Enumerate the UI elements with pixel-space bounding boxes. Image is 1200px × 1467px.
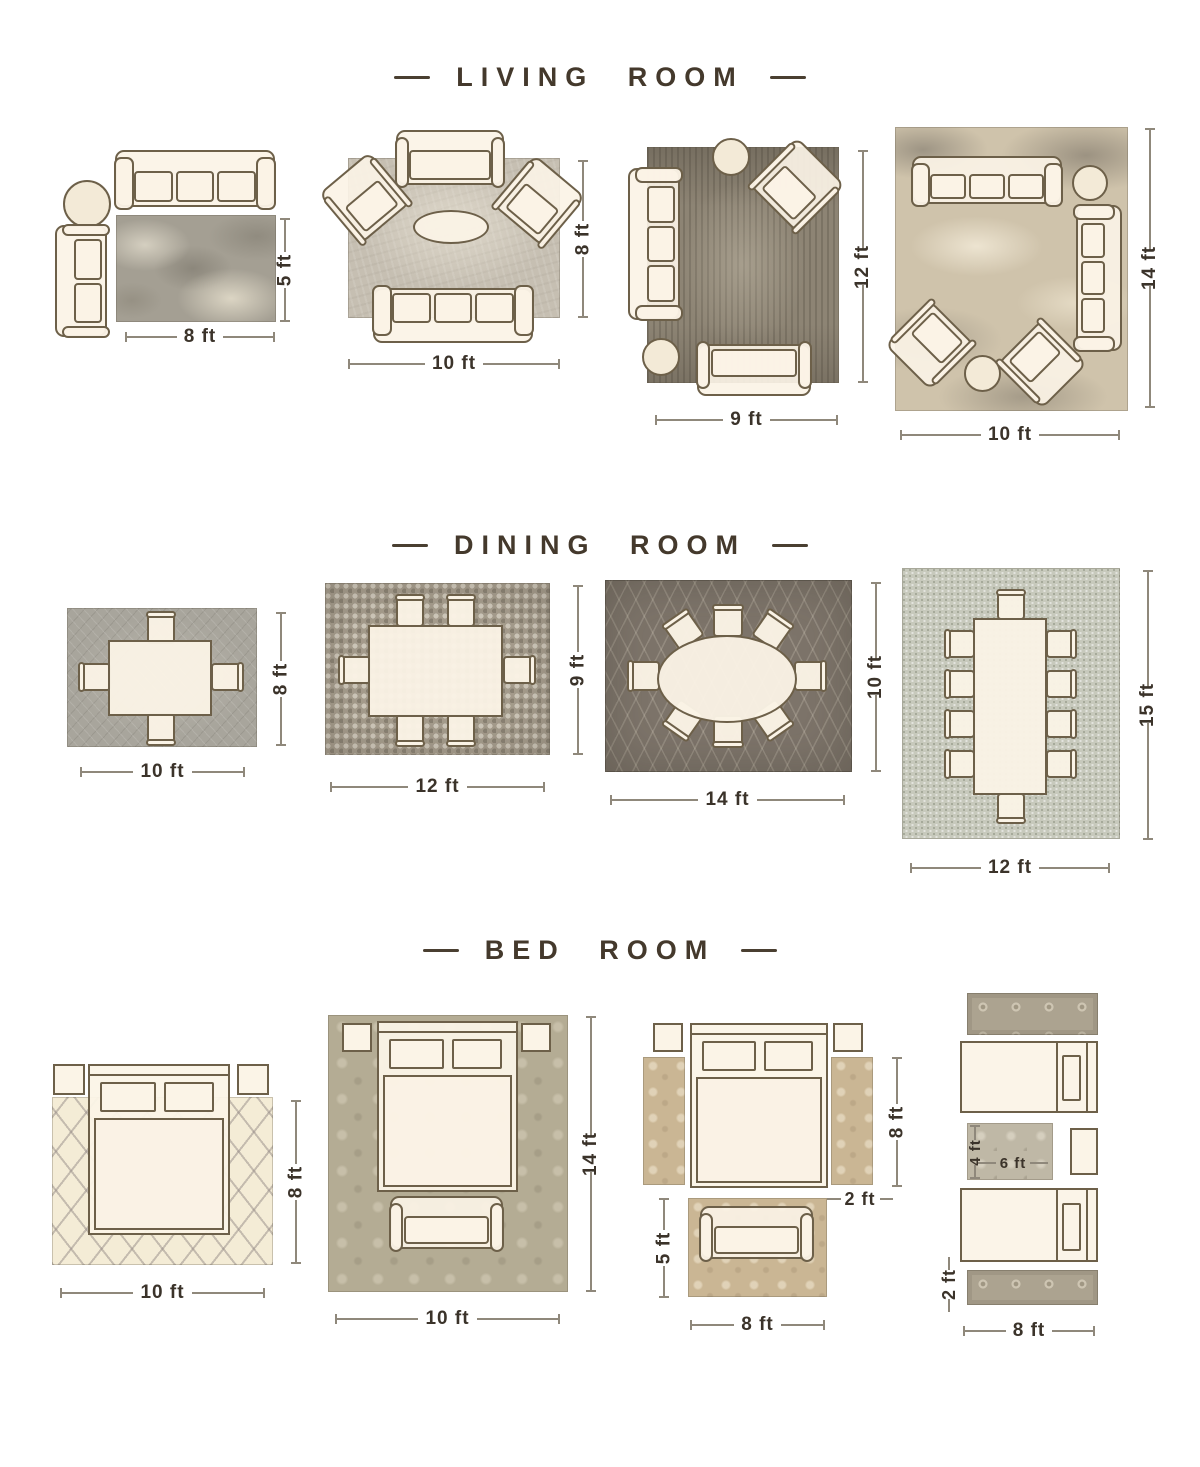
title-dash-left — [392, 544, 428, 547]
dining-chair — [211, 663, 241, 691]
runner-rug — [831, 1057, 873, 1185]
living-room-diagram-3: 12 ft 9 ft — [620, 135, 880, 435]
title-dash-left — [394, 76, 430, 79]
dining-chair — [396, 714, 424, 744]
dining-table — [973, 618, 1047, 795]
dining-chair — [794, 661, 824, 691]
bed-room-diagram-1: 8 ft 10 ft — [40, 1055, 320, 1310]
side-table — [1072, 165, 1108, 201]
nightstand — [53, 1064, 85, 1095]
dining-chair — [147, 713, 175, 743]
dining-table — [108, 640, 212, 716]
bed — [377, 1021, 518, 1192]
rug-width-dimension: 12 ft — [910, 855, 1110, 881]
nightstand — [1070, 1128, 1098, 1175]
rug-width-dimension: 10 ft — [335, 1306, 560, 1332]
side-table — [712, 138, 750, 176]
area-rug — [116, 215, 276, 322]
sofa — [115, 150, 275, 207]
title-dash-right — [770, 76, 806, 79]
nightstand — [653, 1023, 683, 1052]
rug-height-dimension: 14 ft — [578, 1016, 604, 1292]
section-title-text: BED ROOM — [485, 935, 716, 966]
dining-chair — [1046, 670, 1074, 698]
rug-height-dimension: 5 ft — [651, 1198, 677, 1298]
rug-width-dimension: 10 ft — [900, 422, 1120, 448]
bed-room-diagram-4: 4 ft 6 ft 2 ft 8 ft — [930, 985, 1195, 1350]
title-dash-left — [423, 949, 459, 952]
dining-chair — [713, 607, 743, 637]
rug-height-dimension: 8 ft — [268, 612, 294, 746]
rug-width-dimension: 10 ft — [348, 352, 560, 376]
dining-table — [657, 635, 797, 723]
accent-rug-width-dimension: 6 ft — [978, 1153, 1048, 1173]
bed — [88, 1064, 230, 1235]
dining-chair — [396, 597, 424, 627]
rug-height-dimension: 10 ft — [863, 582, 889, 772]
dining-chair — [447, 597, 475, 627]
loveseat — [55, 225, 107, 337]
side-table — [63, 180, 111, 228]
dining-table — [368, 625, 503, 717]
dining-chair — [997, 793, 1025, 821]
loveseat — [697, 344, 811, 396]
sofa — [373, 288, 533, 343]
runner-length-dimension: 8 ft — [884, 1057, 910, 1187]
rug-width-dimension: 10 ft — [80, 760, 245, 784]
nightstand — [833, 1023, 863, 1052]
twin-bed — [960, 1041, 1098, 1113]
dining-chair — [947, 750, 975, 778]
dining-room-diagram-4: 15 ft 12 ft — [895, 565, 1190, 885]
section-title-text: DINING ROOM — [454, 530, 746, 561]
rug-height-dimension: 9 ft — [565, 585, 591, 755]
living-room-section-title: LIVING ROOM — [0, 55, 1200, 99]
dining-room-section-title: DINING ROOM — [0, 523, 1200, 567]
rug-height-dimension: 15 ft — [1135, 570, 1161, 840]
rug-width-dimension: 8 ft — [690, 1312, 825, 1338]
sofa — [1076, 205, 1122, 351]
rug-size-guide: LIVING ROOM 5 ft 8 ft — [0, 0, 1200, 1467]
coffee-table — [413, 210, 489, 244]
nightstand — [342, 1023, 372, 1052]
dining-chair — [503, 656, 533, 684]
title-dash-right — [741, 949, 777, 952]
nightstand — [521, 1023, 551, 1052]
dining-chair — [947, 710, 975, 738]
ottoman — [964, 355, 1001, 392]
dining-room-diagram-1: 8 ft 10 ft — [55, 580, 305, 790]
section-title-text: LIVING ROOM — [456, 62, 744, 93]
rug-width-dimension: 9 ft — [655, 408, 838, 432]
twin-bed — [960, 1188, 1098, 1262]
living-room-diagram-1: 5 ft 8 ft — [50, 145, 310, 360]
loveseat — [396, 130, 504, 185]
rug-width-dimension: 14 ft — [610, 787, 845, 813]
rug-width-dimension: 12 ft — [330, 775, 545, 799]
dining-chair — [630, 661, 660, 691]
dining-chair — [1046, 710, 1074, 738]
rug-width-dimension: 10 ft — [60, 1280, 265, 1306]
runner-rug — [967, 1270, 1098, 1305]
dining-chair — [1046, 750, 1074, 778]
runner-width-dimension: 2 ft — [937, 1257, 961, 1312]
dining-chair — [341, 656, 371, 684]
rug-height-dimension: 14 ft — [1137, 128, 1163, 408]
dining-chair — [447, 714, 475, 744]
runner-rug — [643, 1057, 685, 1185]
rug-height-dimension: 12 ft — [850, 150, 876, 383]
nightstand — [237, 1064, 269, 1095]
rug-width-dimension: 8 ft — [125, 325, 275, 349]
dining-room-diagram-3: 10 ft 14 ft — [595, 575, 895, 820]
dining-chair — [947, 670, 975, 698]
sofa — [628, 168, 680, 320]
rug-height-dimension: 5 ft — [272, 218, 298, 322]
runner-rug — [967, 993, 1098, 1035]
rug-height-dimension: 8 ft — [283, 1100, 309, 1264]
living-room-diagram-4: 14 ft 10 ft — [885, 115, 1195, 450]
bed-room-section-title: BED ROOM — [0, 928, 1200, 972]
bed — [690, 1023, 828, 1188]
bed-room-diagram-3: 8 ft 2 ft 5 ft 8 ft — [635, 1010, 920, 1340]
loveseat — [700, 1206, 813, 1259]
bench — [390, 1196, 503, 1249]
living-room-diagram-2: 8 ft 10 ft — [330, 125, 620, 380]
title-dash-right — [772, 544, 808, 547]
dining-chair — [997, 592, 1025, 620]
dining-chair — [947, 630, 975, 658]
ottoman — [642, 338, 680, 376]
runner-width-dimension: 2 ft — [827, 1188, 893, 1210]
rug-height-dimension: 8 ft — [570, 160, 596, 318]
dining-chair — [81, 663, 111, 691]
dining-room-diagram-2: 9 ft 12 ft — [315, 575, 610, 805]
runner-length-dimension: 8 ft — [963, 1318, 1095, 1344]
sofa — [912, 156, 1062, 204]
bed-room-diagram-2: 14 ft 10 ft — [320, 1005, 610, 1335]
dining-chair — [1046, 630, 1074, 658]
